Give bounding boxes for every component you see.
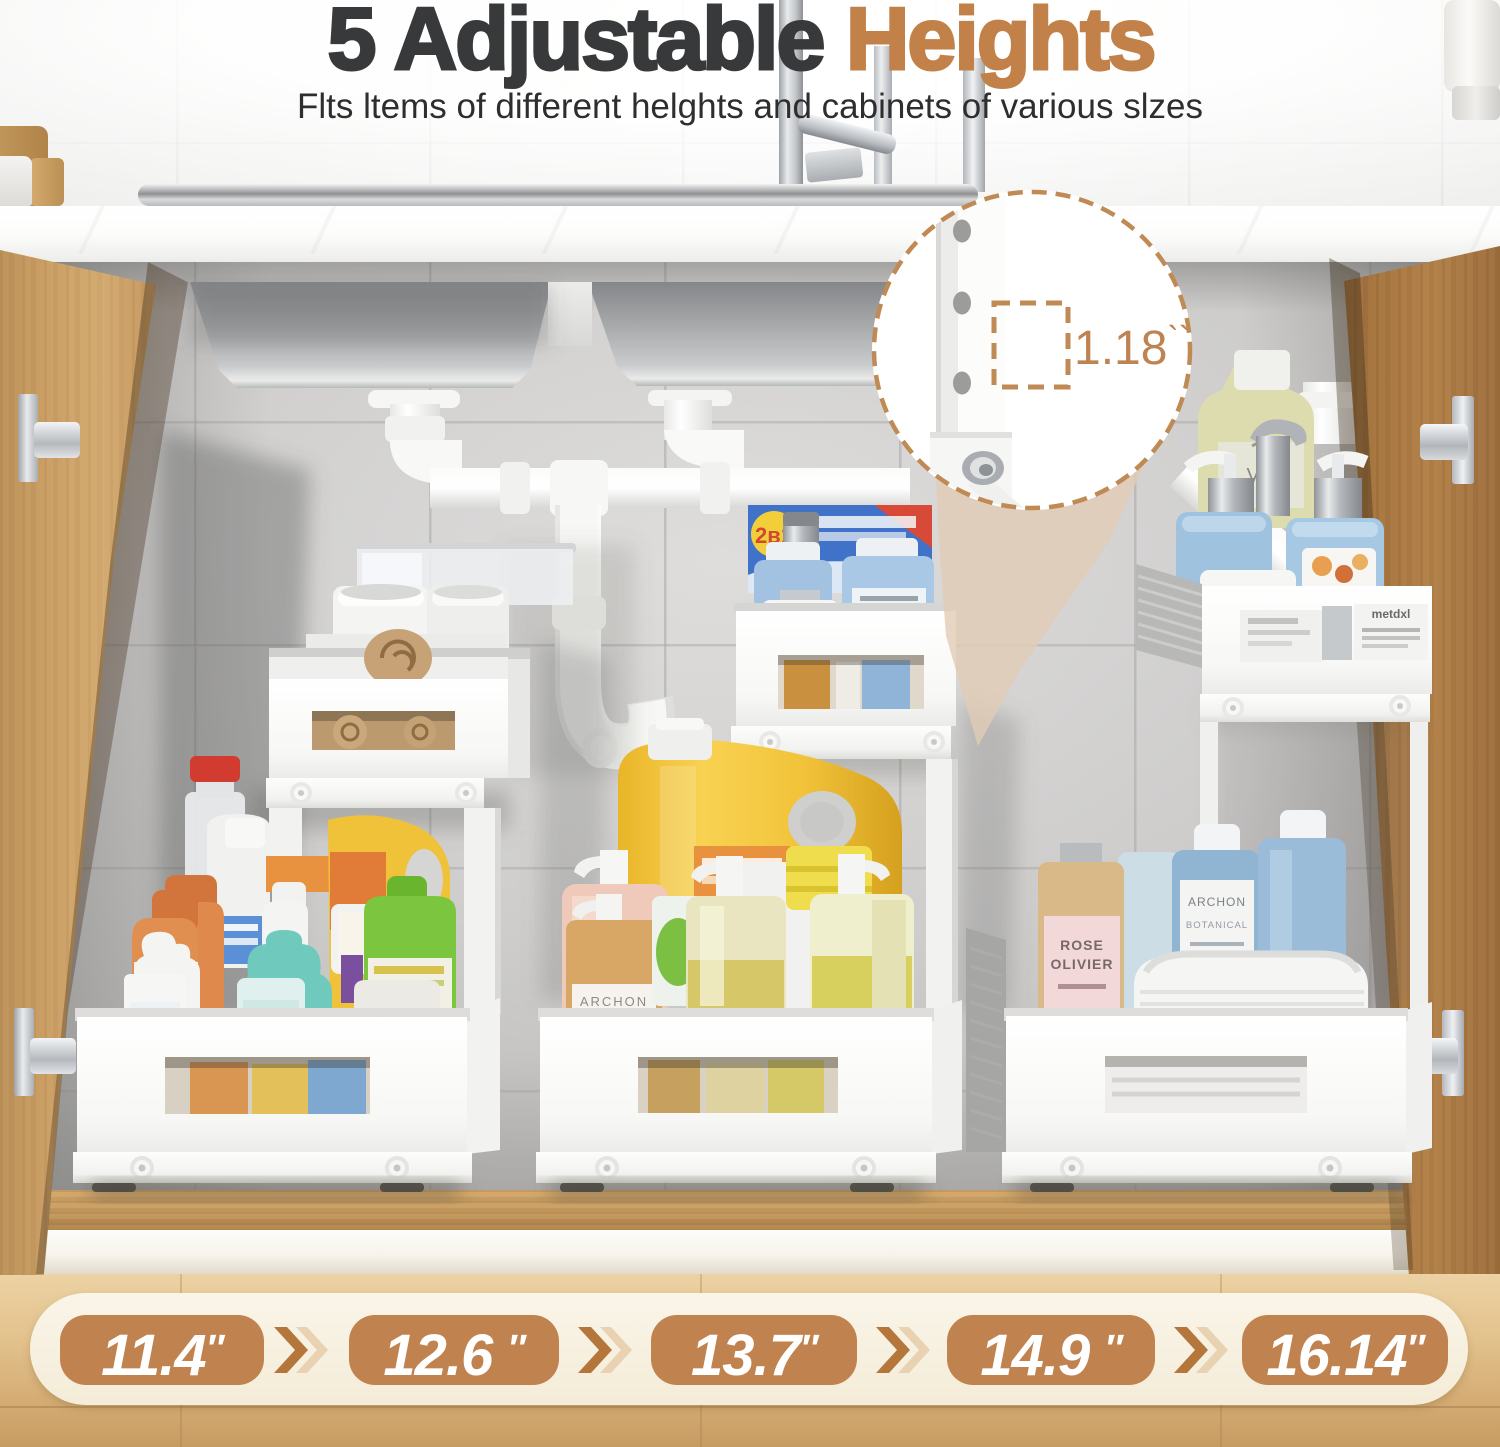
svg-text:ROSE: ROSE — [1060, 937, 1104, 953]
svg-text:BOTANICAL: BOTANICAL — [1186, 920, 1248, 931]
svg-text:metdxl: metdxl — [1372, 607, 1411, 621]
svg-text:ARCHON: ARCHON — [1188, 895, 1246, 909]
svg-text:ARCHON: ARCHON — [580, 994, 648, 1009]
svg-text:OLIVIER: OLIVIER — [1050, 956, 1113, 972]
